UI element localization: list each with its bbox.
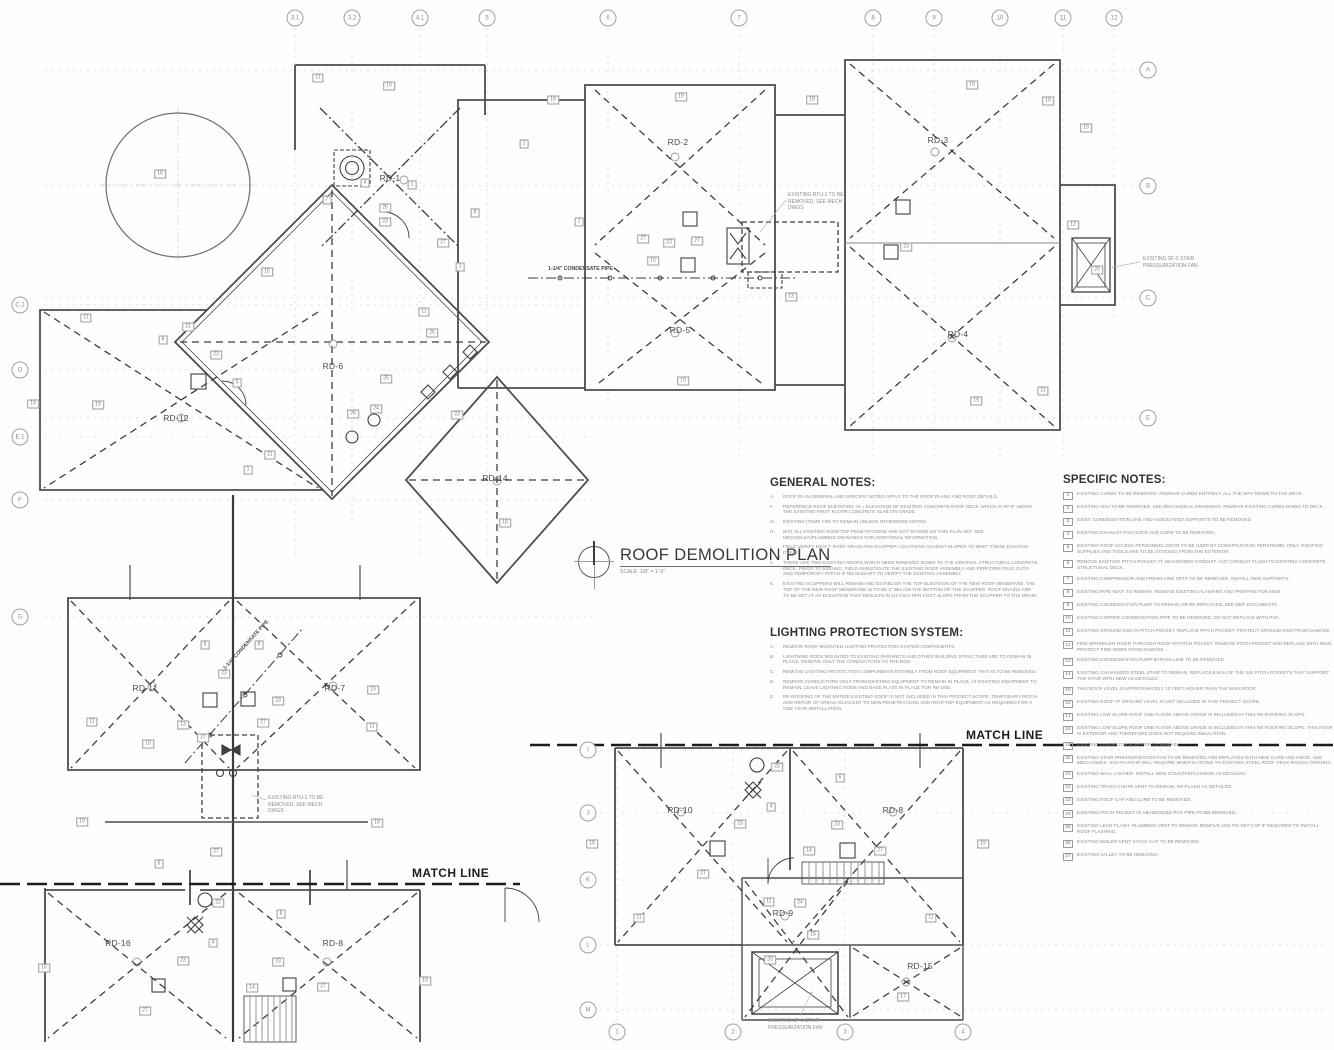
specific-notes-list: 1EXISTING CURBS TO BE REMOVED. REMOVE CU… bbox=[1063, 491, 1333, 861]
grid-bubble: E.1 bbox=[12, 429, 29, 446]
grid-bubble: 1 bbox=[609, 1024, 626, 1041]
grid-bubble: 10 bbox=[992, 10, 1009, 27]
grid-bubble: 4 bbox=[955, 1024, 972, 1041]
plan-annotation: EXISTING SF-1 STAIR PRESSURIZATION FAN bbox=[768, 1018, 823, 1031]
specific-note-text: EXISTING COPPER CONDENSATION PIPE TO BE … bbox=[1077, 615, 1333, 624]
specific-note-number: 9 bbox=[1063, 602, 1073, 610]
keynote-tag: 17 bbox=[897, 993, 909, 1002]
specific-note-number: 18 bbox=[1063, 726, 1073, 734]
keynote-tag: 25 bbox=[380, 375, 392, 384]
grid-bubble: 7 bbox=[731, 10, 748, 27]
lighting-note-letter: D. bbox=[770, 679, 779, 690]
keynote-tag: 6 bbox=[155, 860, 164, 869]
general-note-text: EXISTING ITEMS ARE TO REMAIN UNLESS OTHE… bbox=[783, 519, 1038, 525]
drawing-sheet: 3.13.24.156789101112ABCEC.1DE.1FGIJKLM12… bbox=[0, 0, 1334, 1050]
keynote-tag: 8 bbox=[255, 641, 264, 650]
general-note-item: K.EXISTING SCUPPERS WILL REMAIN AND ESTA… bbox=[770, 581, 1038, 598]
general-note-letter: H. bbox=[770, 529, 779, 540]
specific-note-item: 8EXISTING PIPE VENT TO REMAIN. REMOVE EX… bbox=[1063, 589, 1333, 598]
general-note-letter: J. bbox=[770, 560, 779, 577]
keynote-tag: 13 bbox=[177, 721, 189, 730]
general-notes-panel: GENERAL NOTES: A.ROOF PLAN GENERAL AND S… bbox=[770, 477, 1038, 602]
specific-note-item: 23EXISTING ROOF CAP AND CURB TO BE REMOV… bbox=[1063, 797, 1333, 806]
keynote-tag: 11 bbox=[763, 898, 774, 907]
specific-notes-panel: SPECIFIC NOTES: 1EXISTING CURBS TO BE RE… bbox=[1063, 474, 1333, 865]
roof-drain-label: RD-16 bbox=[105, 938, 131, 948]
specific-note-text: EXISTING PITCH POCKET AT ABANDONED PVC P… bbox=[1077, 810, 1333, 819]
lighting-note-text: REMOVE LIGHTING PROTECTION COMPONENTS EN… bbox=[783, 669, 1038, 675]
lighting-note-text: REMOVE CONDUCTORS ONLY FROM EXISTING EQU… bbox=[783, 679, 1038, 690]
keynote-tag: 26 bbox=[426, 329, 438, 338]
grid-bubble: C bbox=[1140, 290, 1157, 307]
specific-note-number: 15 bbox=[1063, 687, 1073, 695]
keynote-tag: 19 bbox=[371, 819, 383, 828]
keynote-tag: 23 bbox=[210, 351, 222, 360]
roof-drain-label: RD-8 bbox=[883, 805, 904, 815]
keynote-tag: 19 bbox=[92, 401, 104, 410]
roof-drain-label: RD-14 bbox=[482, 473, 508, 483]
specific-note-item: 2EXISTING AHU TO BE REMOVED, SEE MECHANI… bbox=[1063, 504, 1333, 513]
condensate-lines bbox=[185, 278, 798, 763]
specific-note-item: 3EXIST. CONDENSATION LINE AND ASSOCIATED… bbox=[1063, 517, 1333, 526]
grid-bubble: M bbox=[580, 1002, 597, 1019]
general-note-text: NOT ALL EXISTING ROOFTOP PENETRATIONS AR… bbox=[783, 529, 1038, 540]
grid-bubble: L bbox=[580, 937, 597, 954]
specific-note-item: 26EXISTING BOILER VENT STACK CAP TO BE R… bbox=[1063, 839, 1333, 848]
keynote-tag: 11 bbox=[80, 314, 91, 323]
keynote-tag: 19 bbox=[675, 93, 687, 102]
keynote-tag: 26 bbox=[347, 410, 359, 419]
keynote-tag: 1 bbox=[456, 263, 465, 272]
specific-note-number: 1 bbox=[1063, 492, 1073, 500]
keynote-tag: 6 bbox=[159, 336, 168, 345]
lighting-note-item: D.REMOVE CONDUCTORS ONLY FROM EXISTING E… bbox=[770, 679, 1038, 690]
specific-note-number: 10 bbox=[1063, 615, 1073, 623]
keynote-tag: 27 bbox=[257, 719, 269, 728]
specific-note-text: EXISTING ROOF ACCESS PERSONNEL DOOR TO B… bbox=[1077, 543, 1333, 554]
specific-note-item: 9EXISTING CONDENSATION PUMP TO REMAIN OR… bbox=[1063, 602, 1333, 611]
plan-annotation: EXISTING RTU-1 TO BE REMOVED, SEE MECH D… bbox=[268, 795, 324, 815]
specific-note-number: 14 bbox=[1063, 671, 1073, 679]
keynote-tag: 19 bbox=[383, 82, 395, 91]
keynote-tag: 4 bbox=[767, 803, 776, 812]
keynote-tag: 23 bbox=[272, 958, 284, 967]
keynote-tag: 8 bbox=[471, 209, 480, 218]
specific-note-text: EXISTING BOILER VENT STACK CAP TO BE REM… bbox=[1077, 839, 1333, 848]
keynote-tag: 27 bbox=[317, 983, 329, 992]
grid-bubble: I bbox=[580, 742, 597, 759]
leader-lines bbox=[252, 200, 1140, 1016]
specific-note-text: EXISTING AHU TO BE REMOVED, SEE MECHANIC… bbox=[1077, 504, 1333, 513]
keynote-tag: 19 bbox=[677, 377, 689, 386]
keynote-tag: 4 bbox=[209, 939, 218, 948]
general-note-item: A.ROOF PLAN GENERAL AND SPECIFIC NOTES A… bbox=[770, 494, 1038, 500]
keynote-tag: 24 bbox=[794, 899, 806, 908]
specific-note-item: 27EXISTING VALLEY TO BE REMOVED. bbox=[1063, 852, 1333, 861]
specific-note-item: 22EXISTING TRASH CHUTE VENT TO REMAIN. R… bbox=[1063, 784, 1333, 793]
keynote-tag: 10 bbox=[647, 257, 659, 266]
keynote-tag: 27 bbox=[697, 870, 709, 879]
grid-bubble: 6 bbox=[600, 10, 617, 27]
roof-drain-label: RD-7 bbox=[325, 683, 346, 693]
grid-bubble: 3.2 bbox=[344, 10, 361, 27]
specific-note-text: EXISTING COMPRESSOR AND FREON LINE SETS … bbox=[1077, 576, 1333, 585]
specific-note-number: 7 bbox=[1063, 576, 1073, 584]
specific-note-text: EXISTING CONDENSATION PUMP BYPASS LINE T… bbox=[1077, 657, 1333, 666]
general-note-text: FIELD VERIFY EXACT ROOF DRAIN AND SCUPPE… bbox=[783, 544, 1038, 555]
keynote-tag: 27 bbox=[874, 847, 886, 856]
plan-annotation: 1-1/4" CONDENSATE PIPE bbox=[548, 266, 613, 273]
grid-bubble: D bbox=[12, 362, 29, 379]
grid-bubble: 5 bbox=[479, 10, 496, 27]
keynote-tag: 19 bbox=[76, 818, 88, 827]
general-note-item: F.REFERENCE ROOF ELEVATION +0 = ELEVATIO… bbox=[770, 504, 1038, 515]
specific-note-number: 22 bbox=[1063, 784, 1073, 792]
lighting-note-item: B.LIGHTNING RODS MOUNTED TO EXISTING PAR… bbox=[770, 654, 1038, 665]
keynote-tag: 23 bbox=[451, 411, 463, 420]
general-notes-heading: GENERAL NOTES: bbox=[770, 477, 1038, 489]
general-note-text: EXISTING SCUPPERS WILL REMAIN AND ESTABL… bbox=[783, 581, 1038, 598]
keynote-tag: 27 bbox=[637, 235, 649, 244]
general-note-item: H.NOT ALL EXISTING ROOFTOP PENETRATIONS … bbox=[770, 529, 1038, 540]
specific-note-item: 20EXISTING STAIR PRESSURIZATION FAN TO B… bbox=[1063, 755, 1333, 766]
keynote-tag: 20 bbox=[1091, 266, 1103, 275]
specific-note-number: 17 bbox=[1063, 713, 1073, 721]
keynote-tag: 21 bbox=[182, 323, 194, 332]
roof-drain-label: RD-9 bbox=[773, 908, 794, 918]
specific-note-number: 12 bbox=[1063, 641, 1073, 649]
specific-note-text: FIRE SPRINKLER RISER THROUGH ROOF IN PIT… bbox=[1077, 641, 1333, 652]
lighting-note-letter: A. bbox=[770, 644, 779, 650]
specific-note-text: EXISTING PIPE VENT TO REMAIN. REMOVE EXI… bbox=[1077, 589, 1333, 598]
keynote-tag: 8 bbox=[277, 910, 286, 919]
keynote-tag: 19 bbox=[966, 81, 978, 90]
grid-bubble: 9 bbox=[926, 10, 943, 27]
keynote-tag: 19 bbox=[367, 686, 379, 695]
specific-note-text: EXISTING LOW SLOPE ROOF ONE FLOOR ABOVE … bbox=[1077, 725, 1333, 736]
keynote-tag: 22 bbox=[212, 899, 224, 908]
lighting-note-letter: E. bbox=[770, 694, 779, 711]
specific-note-number: 21 bbox=[1063, 771, 1073, 779]
specific-note-text: EXISTING CURBS TO BE REMOVED. REMOVE CUR… bbox=[1077, 491, 1333, 500]
grid-bubble: 3.1 bbox=[287, 10, 304, 27]
specific-note-text: REMOVE EXISTING PITCH POCKET AT ABANDONE… bbox=[1077, 559, 1333, 570]
keynote-tag: 1 bbox=[520, 140, 529, 149]
specific-note-number: 26 bbox=[1063, 840, 1073, 848]
grid-bubble: J bbox=[580, 805, 597, 822]
specific-note-number: 23 bbox=[1063, 797, 1073, 805]
specific-note-number: 6 bbox=[1063, 560, 1073, 568]
keynote-tag: 1 bbox=[575, 218, 584, 227]
roof-drain-label: RD-6 bbox=[323, 361, 344, 371]
specific-note-number: 27 bbox=[1063, 853, 1073, 861]
roof-drain-label: RD-12 bbox=[163, 413, 189, 423]
specific-note-number: 5 bbox=[1063, 544, 1073, 552]
keynote-tag: 23 bbox=[900, 243, 912, 252]
specific-note-text: EXISTING WALL LOUVER. INSTALL NEW COUNTE… bbox=[1077, 771, 1333, 780]
keynote-tag: 1 bbox=[244, 466, 253, 475]
lighting-note-letter: B. bbox=[770, 654, 779, 665]
keynote-tag: 16 bbox=[38, 964, 50, 973]
keynote-tag: 11 bbox=[264, 451, 275, 460]
specific-note-item: 10EXISTING COPPER CONDENSATION PIPE TO B… bbox=[1063, 615, 1333, 624]
general-note-letter: A. bbox=[770, 494, 779, 500]
keynote-tag: 15 bbox=[807, 931, 819, 940]
grid-bubble: 11 bbox=[1055, 10, 1072, 27]
general-note-text: THERE ARE TWO EXISTING ROOFS WHICH NEED … bbox=[783, 560, 1038, 577]
keynote-tag: 19 bbox=[27, 400, 39, 409]
specific-note-item: 11EXISTING GROUND ROD IN PITCH POCKET. R… bbox=[1063, 628, 1333, 637]
roof-drain-label: RD-2 bbox=[668, 137, 689, 147]
keynote-tag: 19 bbox=[586, 840, 598, 849]
keynote-tag: 15 bbox=[261, 268, 273, 277]
specific-note-number: 24 bbox=[1063, 810, 1073, 818]
lighting-note-text: RE-ROOFING OF THE ENTIRE EXISTING ROOF I… bbox=[783, 694, 1038, 711]
general-note-text: REFERENCE ROOF ELEVATION +0 = ELEVATION … bbox=[783, 504, 1038, 515]
specific-note-text: EXISTING CONDENSATION PUMP TO REMAIN OR … bbox=[1077, 602, 1333, 611]
keynote-tag: 20 bbox=[764, 956, 776, 965]
keynote-tag: 19 bbox=[419, 977, 431, 986]
general-note-item: J.THERE ARE TWO EXISTING ROOFS WHICH NEE… bbox=[770, 560, 1038, 577]
keynote-tag: 11 bbox=[633, 914, 644, 923]
lighting-notes-panel: LIGHTING PROTECTION SYSTEM: A.REMOVE ROO… bbox=[770, 627, 1038, 716]
lighting-note-letter: C. bbox=[770, 669, 779, 675]
specific-note-item: 1EXISTING CURBS TO BE REMOVED. REMOVE CU… bbox=[1063, 491, 1333, 500]
keynote-tag: 12 bbox=[1067, 221, 1079, 230]
keynote-tag: 7 bbox=[323, 196, 332, 205]
keynote-tag: 23 bbox=[663, 239, 675, 248]
specific-note-text: EXISTING TRASH CHUTE VENT TO REMAIN. RE-… bbox=[1077, 784, 1333, 793]
specific-note-text: EXISTING EXHAUST FAN HOOD AND CURB TO BE… bbox=[1077, 530, 1333, 539]
roof-drain-label: RD-5 bbox=[670, 325, 691, 335]
roof-drain-label: RD-1 bbox=[380, 173, 401, 183]
keynote-tag: 10 bbox=[142, 740, 154, 749]
keynote-tag: 27 bbox=[197, 734, 209, 743]
specific-note-text: EXISTING LOW SLOPE ROOF ONE FLOOR ABOVE … bbox=[1077, 712, 1333, 721]
north-arrow-icon bbox=[578, 546, 610, 578]
keynote-tag: 18 bbox=[499, 519, 511, 528]
specific-notes-heading: SPECIFIC NOTES: bbox=[1063, 474, 1333, 486]
lighting-note-text: REMOVE ROOF MOUNTED LIGHTING PROTECTION … bbox=[783, 644, 1038, 650]
lighting-note-item: E.RE-ROOFING OF THE ENTIRE EXISTING ROOF… bbox=[770, 694, 1038, 711]
keynote-tag: 27 bbox=[210, 848, 222, 857]
specific-note-number: 11 bbox=[1063, 628, 1073, 636]
keynote-tag: 23 bbox=[831, 821, 843, 830]
specific-note-text: THIS ROOF LEVEL IS APPROXIMATELY 12 FEET… bbox=[1077, 686, 1333, 695]
grid-bubble: E bbox=[1140, 410, 1157, 427]
keynote-tag: 11 bbox=[366, 723, 377, 732]
keynote-tag: 11 bbox=[925, 914, 936, 923]
keynote-tag: 27 bbox=[437, 239, 449, 248]
keynote-tag: 19 bbox=[970, 397, 982, 406]
roof-drain-label: RD-15 bbox=[907, 961, 933, 971]
keynote-tag: 13 bbox=[785, 293, 797, 302]
keynote-tag: 25 bbox=[379, 204, 391, 213]
keynote-tag: 11 bbox=[1037, 387, 1048, 396]
plan-annotation: MATCH LINE bbox=[412, 866, 489, 882]
plan-annotation: EXISTING SF-2 STAIR PRESSURIZATION FAN bbox=[1143, 256, 1198, 269]
keynote-tag: 27 bbox=[691, 237, 703, 246]
plan-annotation: MATCH LINE bbox=[966, 728, 1043, 744]
keynote-tag: 8 bbox=[361, 179, 370, 188]
specific-note-text: EXIST. CONDENSATION LINE AND ASSOCIATED … bbox=[1077, 517, 1333, 526]
specific-note-number: 8 bbox=[1063, 589, 1073, 597]
grid-bubble: 3 bbox=[837, 1024, 854, 1041]
lighting-note-item: A.REMOVE ROOF MOUNTED LIGHTING PROTECTIO… bbox=[770, 644, 1038, 650]
general-note-letter: K. bbox=[770, 581, 779, 598]
grid-bubble: B bbox=[1140, 178, 1157, 195]
plan-annotation: EXISTING RTU-1 TO BE REMOVED, SEE MECH D… bbox=[788, 192, 844, 212]
specific-note-text: EXISTING ROOF CAP AND CURB TO BE REMOVED… bbox=[1077, 797, 1333, 806]
roof-drain-label: RD-8 bbox=[323, 938, 344, 948]
keynote-tag: 14 bbox=[803, 847, 815, 856]
roof-drain-label: RD-4 bbox=[948, 329, 969, 339]
specific-note-number: 4 bbox=[1063, 531, 1073, 539]
specific-note-item: 16EXISTING ROOF AT GROUND LEVEL IS NOT I… bbox=[1063, 699, 1333, 708]
general-note-text: ROOF PLAN GENERAL AND SPECIFIC NOTES APP… bbox=[783, 494, 1038, 500]
specific-note-item: 21EXISTING WALL LOUVER. INSTALL NEW COUN… bbox=[1063, 771, 1333, 780]
specific-note-item: 5EXISTING ROOF ACCESS PERSONNEL DOOR TO … bbox=[1063, 543, 1333, 554]
roof-drain-label: RD-10 bbox=[667, 805, 693, 815]
specific-note-number: 13 bbox=[1063, 658, 1073, 666]
grid-bubble: 12 bbox=[1106, 10, 1123, 27]
keynote-tag: 14 bbox=[246, 984, 258, 993]
keynote-tag: 19 bbox=[977, 840, 989, 849]
keynote-tag: 8 bbox=[201, 641, 210, 650]
lighting-notes-heading: LIGHTING PROTECTION SYSTEM: bbox=[770, 627, 1038, 639]
keynote-tag: 5 bbox=[233, 379, 242, 388]
general-note-letter: G. bbox=[770, 519, 779, 525]
grid-bubble: A bbox=[1140, 62, 1157, 79]
keynote-tag: 23 bbox=[272, 697, 284, 706]
general-note-item: I.FIELD VERIFY EXACT ROOF DRAIN AND SCUP… bbox=[770, 544, 1038, 555]
grid-bubble: G bbox=[12, 609, 29, 626]
specific-note-item: 7EXISTING COMPRESSOR AND FREON LINE SETS… bbox=[1063, 576, 1333, 585]
keynote-tag: 19 bbox=[1080, 124, 1092, 133]
specific-note-item: 15THIS ROOF LEVEL IS APPROXIMATELY 12 FE… bbox=[1063, 686, 1333, 695]
keynote-tag: 6 bbox=[836, 774, 845, 783]
specific-note-number: 20 bbox=[1063, 755, 1073, 763]
keynote-tag: 24 bbox=[370, 405, 382, 414]
grid-bubble: 8 bbox=[865, 10, 882, 27]
specific-note-text: EXISTING GALVANIZED STEEL STAIR TO REMAI… bbox=[1077, 670, 1333, 681]
specific-note-item: 24EXISTING PITCH POCKET AT ABANDONED PVC… bbox=[1063, 810, 1333, 819]
specific-note-text: EXISTING STAIR PRESSURIZATION FAN TO BE … bbox=[1077, 755, 1333, 766]
specific-note-number: 2 bbox=[1063, 505, 1073, 513]
specific-note-item: 13EXISTING CONDENSATION PUMP BYPASS LINE… bbox=[1063, 657, 1333, 666]
keynote-tag: 1 bbox=[408, 181, 417, 190]
specific-note-item: 6REMOVE EXISTING PITCH POCKET AT ABANDON… bbox=[1063, 559, 1333, 570]
keynote-tag: 11 bbox=[418, 308, 429, 317]
keynote-tag: 27 bbox=[139, 1007, 151, 1016]
specific-note-item: 14EXISTING GALVANIZED STEEL STAIR TO REM… bbox=[1063, 670, 1333, 681]
keynote-tag: 19 bbox=[806, 96, 818, 105]
grid-bubble: 4.1 bbox=[412, 10, 429, 27]
specific-note-text: EXISTING VALLEY TO BE REMOVED. bbox=[1077, 852, 1333, 861]
specific-note-text: EXISTING OVERFLOW SCUPPER TO REMAIN. bbox=[1077, 742, 1333, 751]
general-note-item: G.EXISTING ITEMS ARE TO REMAIN UNLESS OT… bbox=[770, 519, 1038, 525]
roof-drain-label: RD-3 bbox=[928, 135, 949, 145]
general-notes-list: A.ROOF PLAN GENERAL AND SPECIFIC NOTES A… bbox=[770, 494, 1038, 598]
specific-note-number: 25 bbox=[1063, 824, 1073, 832]
keynote-tag: 19 bbox=[547, 96, 559, 105]
keynote-tag: 11 bbox=[312, 74, 323, 83]
specific-note-number: 3 bbox=[1063, 518, 1073, 526]
general-note-letter: I. bbox=[770, 544, 779, 555]
specific-note-text: EXISTING ROOF AT GROUND LEVEL IS NOT INC… bbox=[1077, 699, 1333, 708]
keynote-tag: 11 bbox=[86, 718, 97, 727]
specific-note-item: 12FIRE SPRINKLER RISER THROUGH ROOF IN P… bbox=[1063, 641, 1333, 652]
roof-drain-label: RD-11 bbox=[133, 683, 158, 693]
specific-note-item: 4EXISTING EXHAUST FAN HOOD AND CURB TO B… bbox=[1063, 530, 1333, 539]
keynote-tag: 23 bbox=[379, 218, 391, 227]
keynote-tag: 22 bbox=[771, 763, 783, 772]
specific-note-text: EXISTING GROUND ROD IN PITCH POCKET. REP… bbox=[1077, 628, 1333, 637]
keynote-tag: 19 bbox=[1042, 97, 1054, 106]
specific-note-number: 19 bbox=[1063, 742, 1073, 750]
keynote-tag: 23 bbox=[734, 820, 746, 829]
specific-note-item: 17EXISTING LOW SLOPE ROOF ONE FLOOR ABOV… bbox=[1063, 712, 1333, 721]
lighting-notes-list: A.REMOVE ROOF MOUNTED LIGHTING PROTECTIO… bbox=[770, 644, 1038, 712]
specific-note-text: EXISTING LEAD FLASH- PLUMBING VENT TO RE… bbox=[1077, 823, 1333, 834]
lighting-note-text: LIGHTNING RODS MOUNTED TO EXISTING PARAP… bbox=[783, 654, 1038, 665]
lighting-note-item: C.REMOVE LIGHTING PROTECTION COMPONENTS … bbox=[770, 669, 1038, 675]
specific-note-number: 16 bbox=[1063, 700, 1073, 708]
grid-bubble: F bbox=[12, 492, 29, 509]
keynote-tag: 16 bbox=[154, 170, 166, 179]
grid-bubble: C.1 bbox=[12, 297, 29, 314]
general-note-letter: F. bbox=[770, 504, 779, 515]
specific-note-item: 18EXISTING LOW SLOPE ROOF ONE FLOOR ABOV… bbox=[1063, 725, 1333, 736]
keynote-tag: 23 bbox=[177, 957, 189, 966]
specific-note-item: 25EXISTING LEAD FLASH- PLUMBING VENT TO … bbox=[1063, 823, 1333, 834]
grid-bubble: 2 bbox=[725, 1024, 742, 1041]
specific-note-item: 19EXISTING OVERFLOW SCUPPER TO REMAIN. bbox=[1063, 742, 1333, 751]
grid-bubble: K bbox=[580, 872, 597, 889]
